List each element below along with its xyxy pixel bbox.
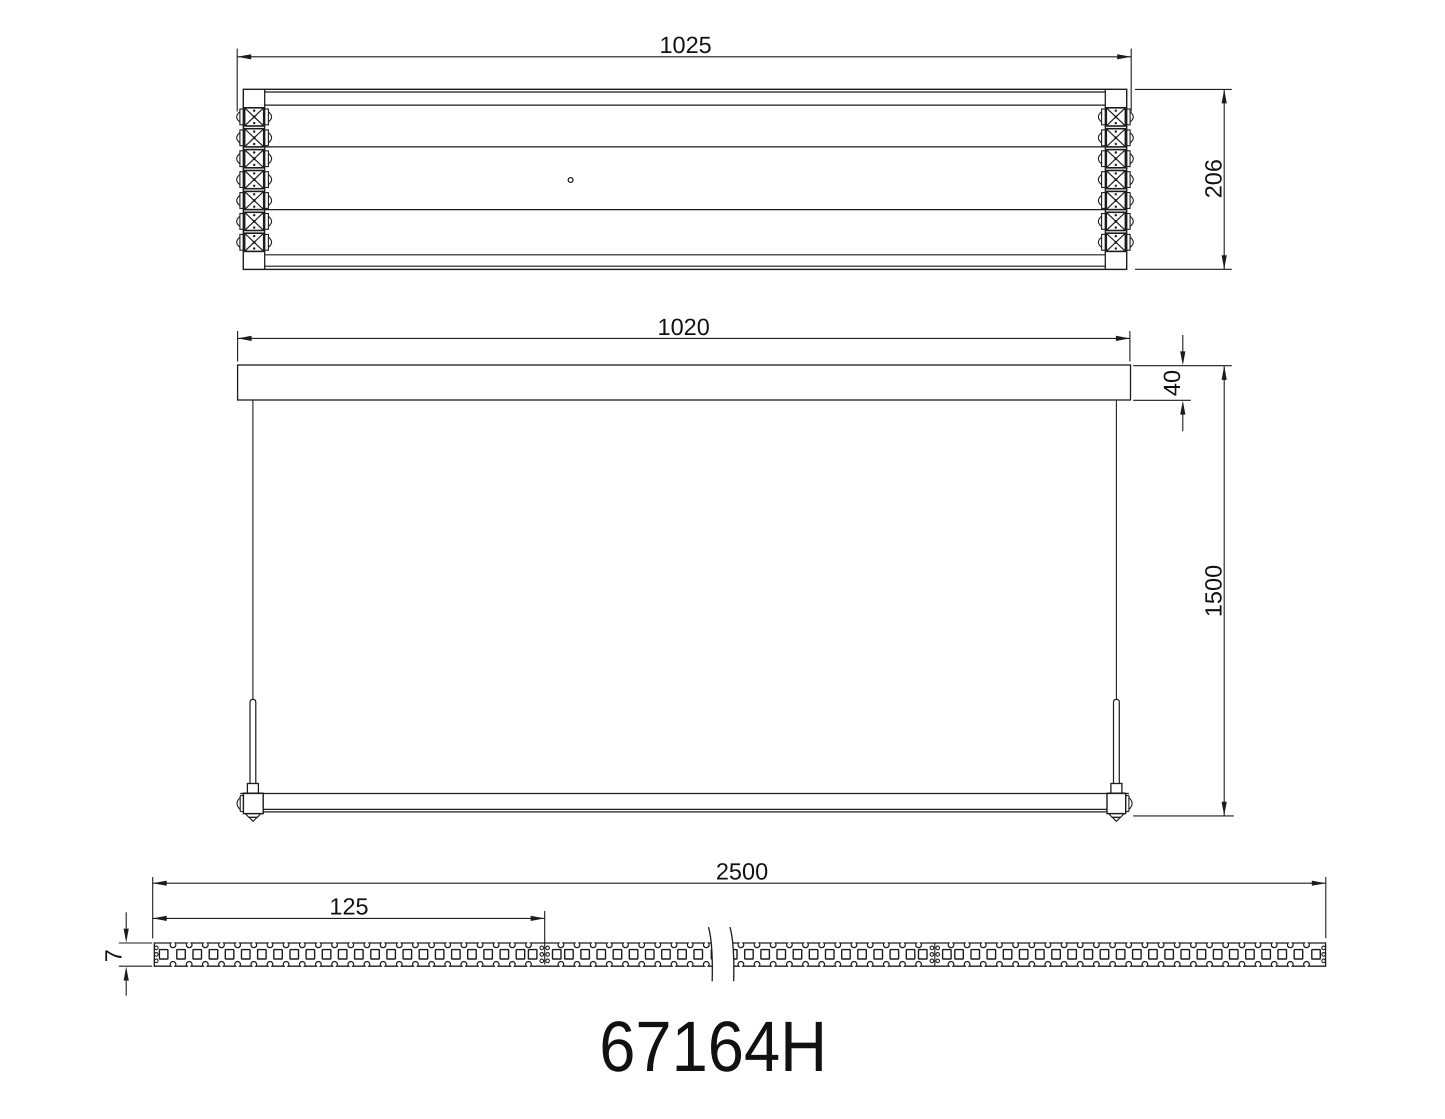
svg-text:2500: 2500 xyxy=(716,859,768,885)
svg-text:40: 40 xyxy=(1159,370,1185,396)
svg-text:125: 125 xyxy=(329,894,368,920)
svg-text:67164H: 67164H xyxy=(599,1007,827,1087)
svg-text:1500: 1500 xyxy=(1201,565,1227,617)
svg-text:1020: 1020 xyxy=(658,314,710,340)
svg-text:1025: 1025 xyxy=(659,32,711,58)
svg-text:7: 7 xyxy=(100,949,126,962)
svg-text:206: 206 xyxy=(1201,159,1227,198)
